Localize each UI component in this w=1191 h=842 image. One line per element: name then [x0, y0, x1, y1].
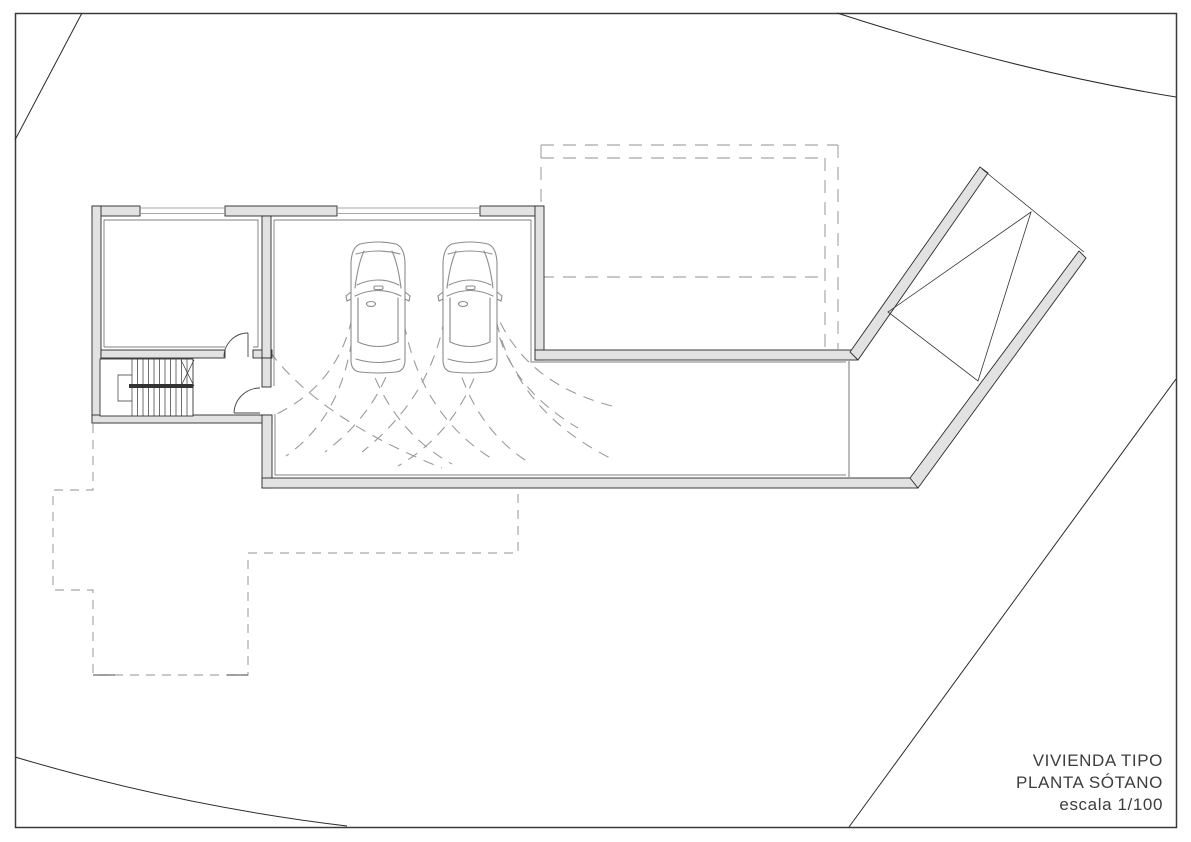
ramp-icon	[849, 167, 1086, 488]
turning-path-arcs-icon	[268, 300, 614, 468]
title-block: VIVIENDA TIPO PLANTA SÓTANO escala 1/100	[1016, 750, 1163, 816]
floor-plan-canvas	[0, 0, 1191, 842]
door-swing-icon	[234, 388, 260, 413]
window-icon	[140, 208, 225, 214]
site-boundary-line-icon	[15, 757, 347, 826]
upper-floor-footprint-dashed	[53, 424, 518, 675]
door-swing-icon	[224, 333, 248, 357]
drawing-sheet: VIVIENDA TIPO PLANTA SÓTANO escala 1/100	[0, 0, 1191, 842]
site-boundary-line-icon	[837, 13, 1176, 97]
sheet-title: PLANTA SÓTANO	[1016, 772, 1163, 794]
scale-label: escala 1/100	[1016, 794, 1163, 816]
car-top-view-icon	[438, 242, 502, 373]
car-top-view-icon	[346, 242, 410, 373]
upper-floor-projection-dashed-icon	[541, 145, 838, 349]
window-icon	[337, 208, 480, 214]
site-boundary-line-icon	[15, 13, 82, 140]
staircase-icon	[100, 359, 194, 416]
project-title: VIVIENDA TIPO	[1016, 750, 1163, 772]
